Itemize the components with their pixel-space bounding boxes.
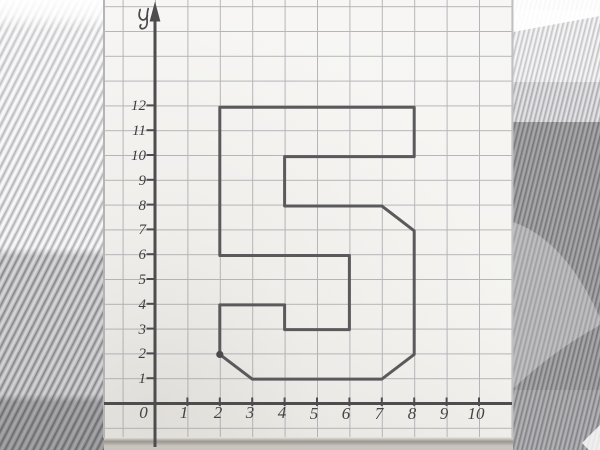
svg-text:1: 1: [139, 371, 147, 387]
svg-text:6: 6: [139, 247, 147, 263]
svg-text:8: 8: [408, 404, 417, 423]
svg-text:6: 6: [342, 404, 351, 423]
svg-text:10: 10: [131, 148, 147, 164]
svg-text:4: 4: [278, 403, 287, 422]
svg-text:0: 0: [139, 403, 148, 422]
svg-text:9: 9: [440, 404, 449, 423]
svg-text:4: 4: [139, 297, 147, 313]
svg-text:5: 5: [139, 272, 147, 288]
svg-text:11: 11: [132, 123, 146, 139]
svg-text:2: 2: [214, 403, 223, 422]
svg-text:1: 1: [180, 403, 189, 422]
svg-text:5: 5: [310, 404, 319, 423]
svg-text:9: 9: [139, 173, 147, 189]
svg-text:10: 10: [468, 404, 486, 423]
svg-text:2: 2: [139, 346, 147, 362]
svg-text:3: 3: [245, 403, 255, 422]
svg-text:3: 3: [138, 322, 147, 338]
svg-text:8: 8: [139, 198, 147, 214]
svg-text:12: 12: [131, 98, 147, 114]
